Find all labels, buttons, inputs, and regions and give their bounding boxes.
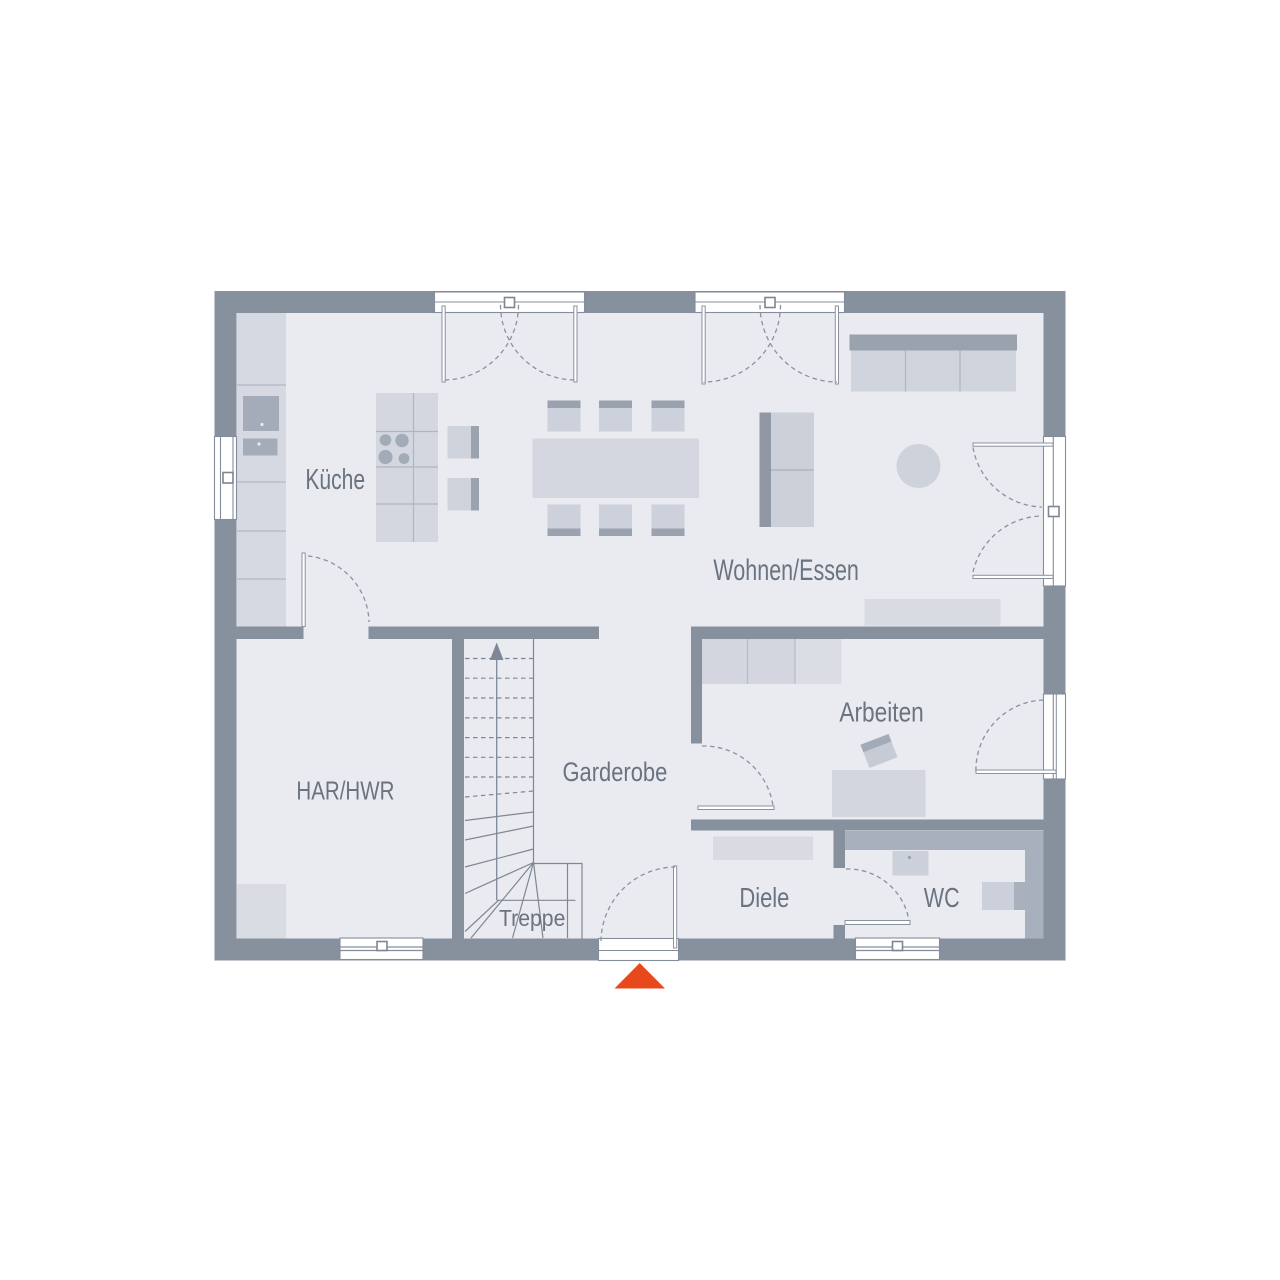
svg-text:Wohnen/Essen: Wohnen/Essen (713, 554, 859, 587)
svg-text:WC: WC (924, 882, 960, 913)
svg-text:Garderobe: Garderobe (563, 757, 668, 787)
svg-text:Arbeiten: Arbeiten (839, 697, 923, 728)
svg-text:Küche: Küche (305, 464, 365, 496)
svg-text:Diele: Diele (739, 882, 789, 913)
svg-text:Treppe: Treppe (499, 905, 565, 931)
svg-text:HAR/HWR: HAR/HWR (296, 776, 394, 806)
